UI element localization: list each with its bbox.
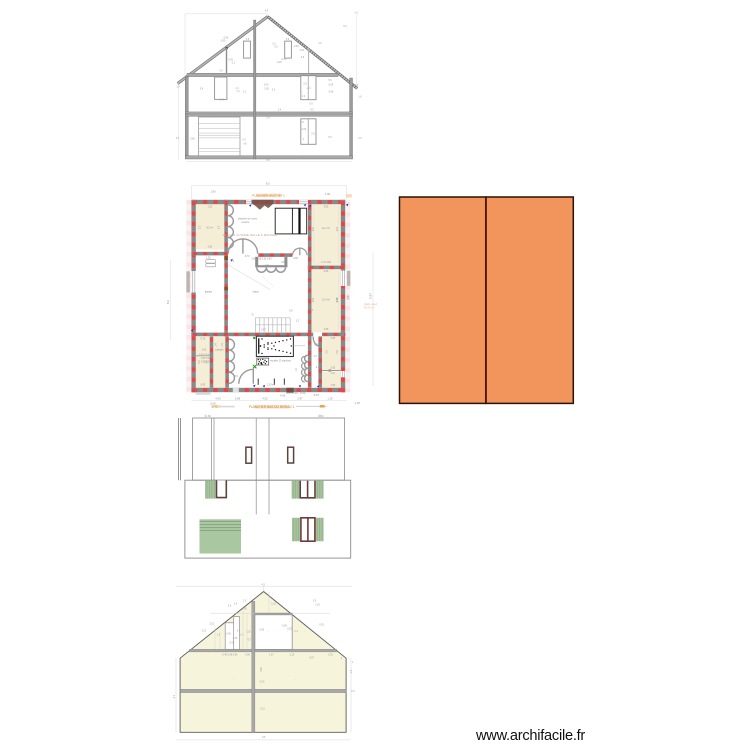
svg-text:-0.07: -0.07 [309,658,315,660]
svg-text:-0.96: -0.96 [229,643,235,645]
svg-text:0.45: 0.45 [212,405,218,409]
svg-text:PLANCHER HAUT NIV 1: PLANCHER HAUT NIV 1 [252,194,285,198]
svg-text:(4): (4) [244,144,247,146]
svg-text:www.archifacile.fr: www.archifacile.fr [475,728,585,744]
svg-text:1.05: 1.05 [331,367,336,369]
svg-text:-1.25: -1.25 [289,654,295,656]
svg-text:-2.08: -2.08 [223,38,229,40]
svg-text:0.97 0.90: 0.97 0.90 [201,358,211,360]
svg-text:0.80: 0.80 [221,41,226,43]
svg-text:5.87: 5.87 [369,293,373,299]
svg-text:0.9: 0.9 [242,140,246,142]
svg-text:0.6: 0.6 [235,376,239,378]
svg-text:3.67: 3.67 [313,297,315,302]
svg-text:1.40: 1.40 [219,100,224,102]
svg-text:0.45: 0.45 [226,634,231,636]
svg-text:5.6: 5.6 [200,89,204,91]
svg-text:0.97: 0.97 [261,330,266,332]
svg-text:-2.66: -2.66 [293,46,299,48]
svg-text:1.05: 1.05 [331,385,336,387]
svg-text:-0.87: -0.87 [313,393,320,397]
svg-text:-2.6: -2.6 [306,88,311,90]
svg-text:8.2: 8.2 [166,300,170,305]
svg-text:0.96: 0.96 [245,654,250,656]
svg-text:1.26: 1.26 [327,396,333,400]
svg-text:0.9: 0.9 [313,601,317,603]
svg-text:1.8: 1.8 [354,13,358,15]
svg-text:5.5: 5.5 [328,137,332,139]
svg-text:0.88: 0.88 [235,396,241,400]
svg-text:2.0: 2.0 [243,601,247,603]
svg-text:0.00: 0.00 [260,682,265,684]
svg-text:2.4: 2.4 [272,90,276,92]
svg-text:2.4: 2.4 [278,110,282,112]
svg-text:PLANCHER BAS DU NIVEAU 1: PLANCHER BAS DU NIVEAU 1 [249,405,295,409]
svg-text:1.06: 1.06 [208,246,213,248]
svg-text:8.5: 8.5 [262,737,266,739]
svg-text:2.2: 2.2 [176,138,180,140]
svg-text:garage: garage [205,290,213,293]
svg-text:3.05: 3.05 [337,297,339,302]
svg-text:-1.2: -1.2 [239,635,244,637]
svg-text:2.60: 2.60 [206,414,212,418]
svg-text:0.80: 0.80 [242,609,247,611]
svg-text:0.9: 0.9 [228,606,232,608]
svg-text:0.25: 0.25 [328,655,333,657]
svg-text:0.35: 0.35 [319,625,324,627]
svg-text:3.06: 3.06 [324,207,329,209]
svg-text:2.60: 2.60 [318,414,324,418]
svg-text:-1.25: -1.25 [354,401,361,405]
svg-text:1.26: 1.26 [208,207,213,209]
svg-text:0.96: 0.96 [293,258,298,260]
svg-text:ouverte: ouverte [242,221,250,224]
svg-text:4.5: 4.5 [265,10,269,12]
svg-text:0.92: 0.92 [201,385,206,387]
svg-text:-1.2: -1.2 [231,63,236,65]
svg-text:1.1: 1.1 [236,91,240,93]
svg-text:-0.05 0.30: -0.05 0.30 [285,391,298,395]
svg-text:2.02: 2.02 [246,632,251,634]
svg-text:-2.66: -2.66 [328,85,334,87]
svg-text:-0.45 0.58 0.96: -0.45 0.58 0.96 [222,654,238,656]
svg-text:4.63: 4.63 [215,396,221,400]
svg-text:0.70: 0.70 [201,338,206,340]
svg-text:séjour: séjour [253,290,260,293]
svg-text:3.67: 3.67 [337,226,339,231]
svg-text:2.50: 2.50 [264,89,269,91]
svg-text:1.1: 1.1 [235,88,239,90]
svg-text:4.66: 4.66 [261,667,263,672]
svg-text:3.67: 3.67 [313,226,315,231]
svg-text:2.6: 2.6 [358,138,362,140]
svg-text:-2.52: -2.52 [209,624,215,626]
svg-text:0.35: 0.35 [233,638,238,640]
svg-text:4.05: 4.05 [262,396,268,400]
svg-text:9.3 m²: 9.3 m² [206,227,213,230]
svg-text:chambre sur mezz: chambre sur mezz [238,218,258,221]
svg-text:1.0: 1.0 [253,313,255,317]
svg-text:placard: placard [216,349,224,352]
svg-text:0.9: 0.9 [301,57,305,59]
svg-text:-0.26: -0.26 [276,62,282,64]
svg-text:-0.25: -0.25 [281,59,287,61]
svg-text:1.8: 1.8 [355,85,359,87]
svg-text:0.9: 0.9 [219,71,223,73]
svg-text:1.60 1.00 0.55 0.60: 1.60 1.00 0.55 0.60 [251,259,272,261]
svg-text:0.4: 0.4 [231,261,235,263]
svg-text:30.5 m²: 30.5 m² [364,306,374,310]
svg-text:0.97: 0.97 [289,336,294,338]
svg-text:-2.66: -2.66 [328,92,334,94]
svg-text:2.82: 2.82 [300,50,305,52]
svg-text:2.4: 2.4 [266,118,270,120]
svg-text:5.5: 5.5 [328,80,332,82]
svg-text:8.5: 8.5 [266,182,270,186]
svg-text:-1.6: -1.6 [351,669,353,674]
svg-text:9.5: 9.5 [310,110,314,112]
svg-text:2.6: 2.6 [318,43,322,45]
svg-text:-2.21: -2.21 [259,709,265,711]
svg-text:0.35: 0.35 [228,60,233,62]
svg-text:0.9: 0.9 [234,604,238,606]
svg-text:1.52: 1.52 [202,350,207,352]
svg-text:0.5: 0.5 [274,47,278,49]
svg-text:1.90: 1.90 [325,192,331,196]
svg-text:1: 1 [352,662,354,664]
svg-text:0.66: 0.66 [190,139,195,141]
svg-text:0.93: 0.93 [300,391,306,395]
svg-text:1.71 1.26: 1.71 1.26 [321,262,331,264]
svg-text:0.9: 0.9 [289,311,293,313]
svg-text:11.9 m²: 11.9 m² [322,299,330,302]
svg-text:1.9: 1.9 [296,368,298,372]
svg-text:1.8: 1.8 [358,97,362,99]
svg-text:1.05: 1.05 [324,329,329,331]
svg-text:1.67: 1.67 [269,654,274,656]
svg-text:2.0: 2.0 [272,44,276,46]
svg-text:0.95: 0.95 [260,630,265,632]
svg-text:0.97 0.90 0.90: 0.97 0.90 0.90 [199,354,213,356]
svg-text:1.05: 1.05 [331,338,336,340]
svg-text:-4.2: -4.2 [174,694,176,699]
svg-text:1.8: 1.8 [176,87,180,89]
svg-text:1.52: 1.52 [206,257,211,259]
svg-text:escalier 13 marches: escalier 13 marches [270,360,292,363]
svg-text:1.3: 1.3 [296,321,300,323]
svg-text:-0.2: -0.2 [351,691,356,693]
svg-text:1.02: 1.02 [315,605,320,607]
svg-text:0.97: 0.97 [314,345,319,347]
svg-text:SÉJOUR CUISINE SALLE À MANGE: SÉJOUR CUISINE SALLE À MANGER [222,232,278,237]
svg-text:1.90: 1.90 [210,190,216,194]
svg-text:1.29 m²: 1.29 m² [267,384,275,387]
svg-text:0.97: 0.97 [281,262,286,264]
svg-text:2.50: 2.50 [264,85,269,87]
svg-text:-0.06: -0.06 [281,626,287,628]
svg-text:2.1: 2.1 [243,92,247,94]
svg-text:11.2 m²: 11.2 m² [322,227,330,230]
svg-text:2.87: 2.87 [346,294,350,300]
svg-text:1.3: 1.3 [313,356,317,358]
svg-text:1.02: 1.02 [271,604,276,606]
svg-text:0.9: 0.9 [309,104,313,106]
svg-text:-2.52: -2.52 [201,631,207,633]
svg-text:-0.7: -0.7 [247,640,252,642]
svg-text:2.87: 2.87 [297,396,303,400]
svg-text:4.06: 4.06 [324,271,329,273]
svg-text:5.2: 5.2 [343,26,347,28]
svg-text:0.73: 0.73 [245,256,250,258]
svg-text:-2.66: -2.66 [301,129,307,131]
svg-text:0.25: 0.25 [287,629,292,631]
